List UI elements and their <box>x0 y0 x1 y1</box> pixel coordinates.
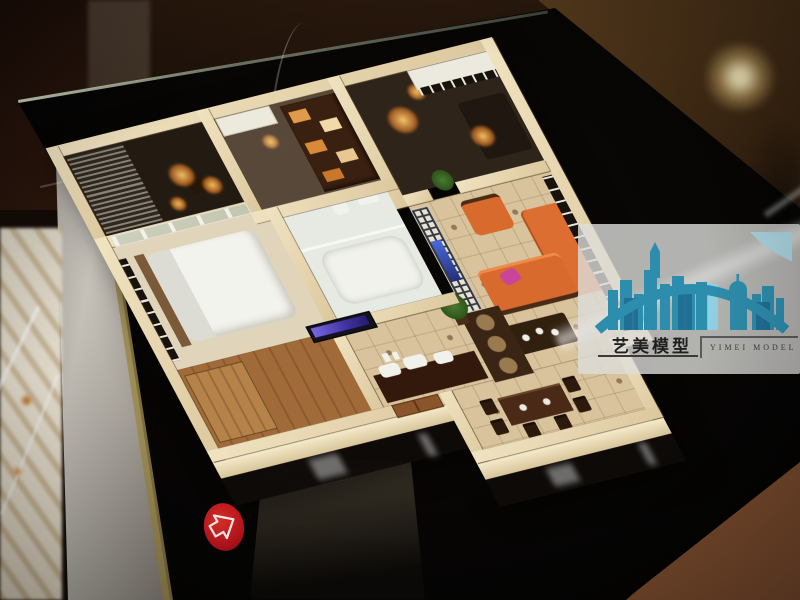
watermark-box-line <box>700 336 798 338</box>
skyline-logo <box>592 232 792 336</box>
background-amber-dot <box>22 396 31 405</box>
watermark-brand-en: YIMEI MODEL <box>710 343 797 352</box>
background-amber-dot <box>14 468 21 475</box>
watermark: 艺美模型 YIMEI MODEL <box>578 224 800 374</box>
background-left-blur <box>0 228 62 600</box>
red-arrow-sticker <box>200 500 248 554</box>
watermark-box-line <box>700 336 702 358</box>
watermark-brand-cn: 艺美模型 <box>612 332 692 357</box>
light-reflection-spot <box>700 42 780 112</box>
photograph: 艺美模型 YIMEI MODEL <box>0 0 800 600</box>
watermark-underline <box>598 355 698 357</box>
arrow-icon <box>200 500 248 554</box>
